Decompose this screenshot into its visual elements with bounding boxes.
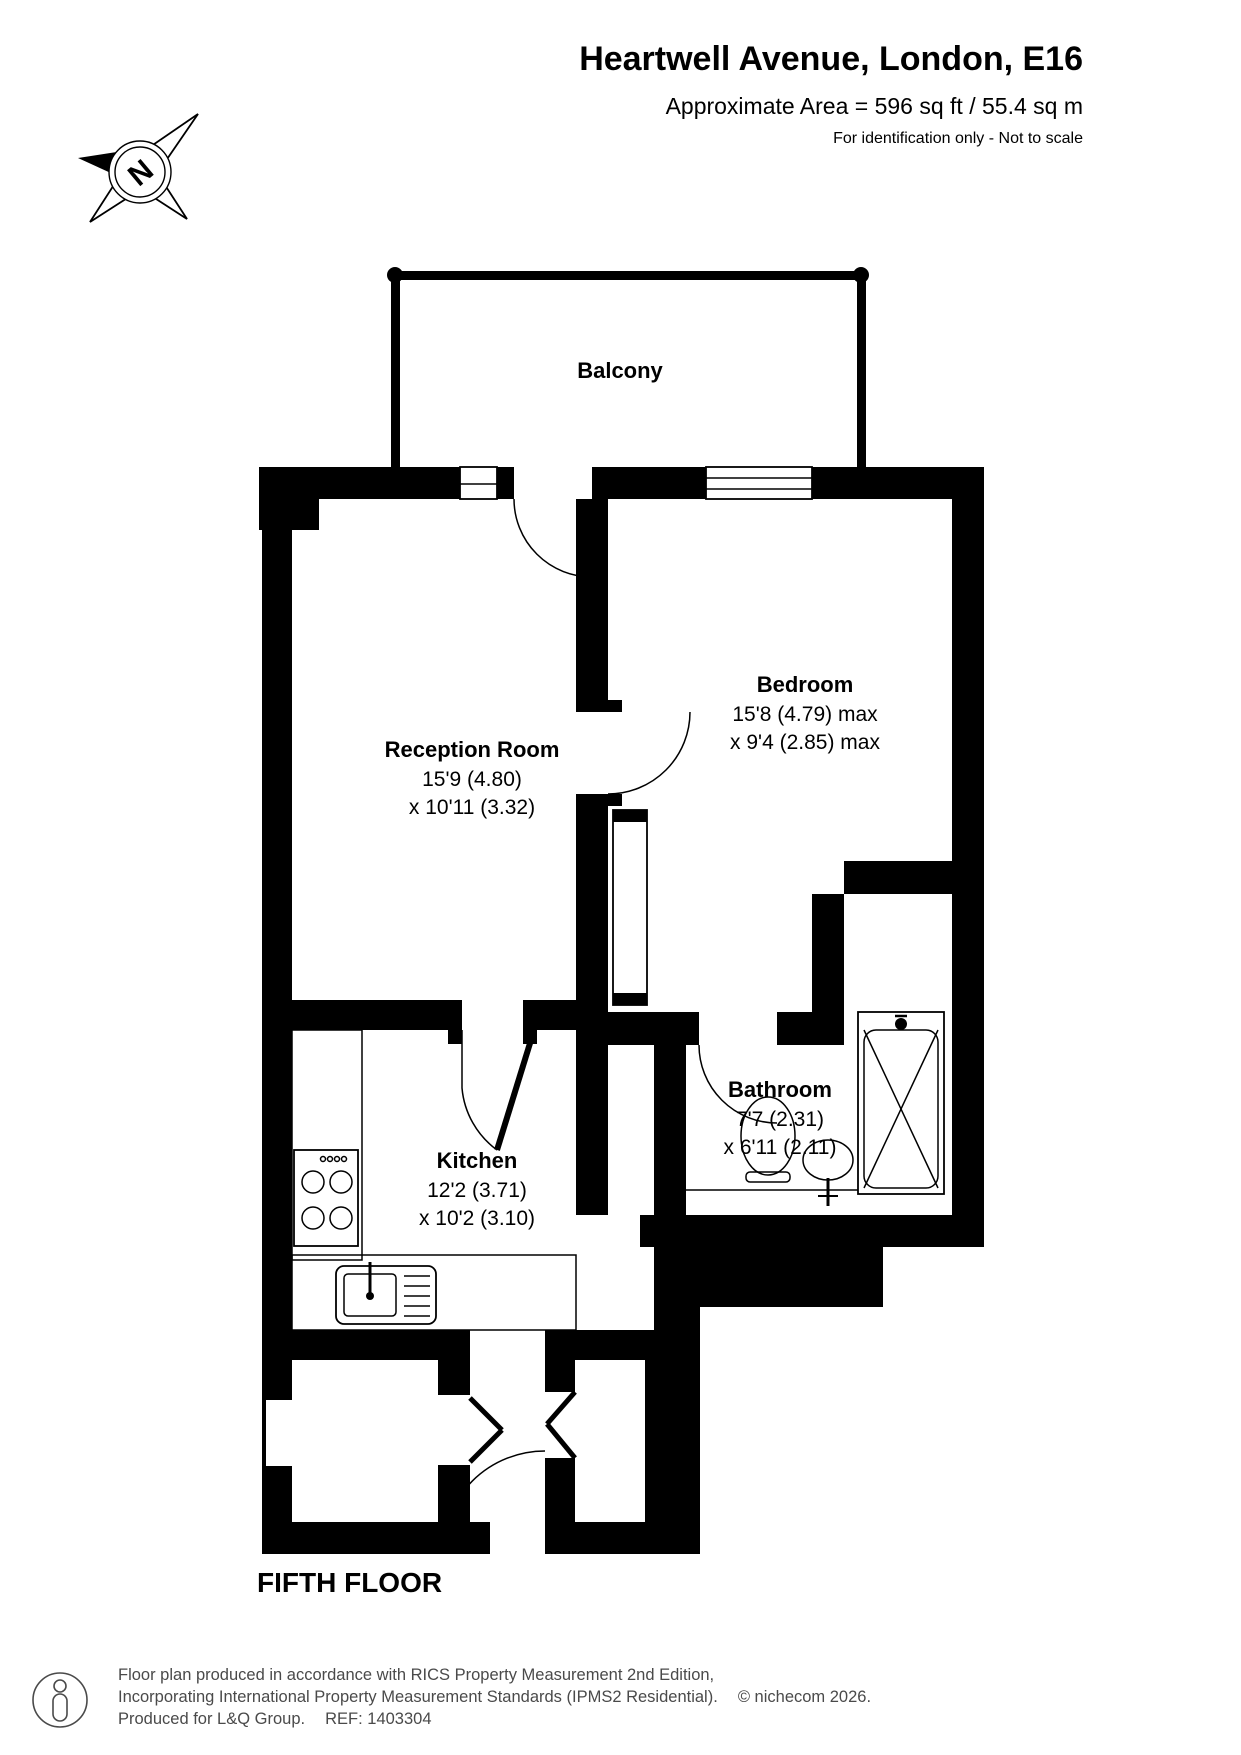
walls — [259, 467, 984, 1554]
floorplan-drawing: N — [0, 0, 1241, 1755]
svg-text:7'7 (2.31): 7'7 (2.31) — [736, 1108, 824, 1131]
kitchen-sink-icon — [336, 1262, 436, 1324]
bathtub-icon — [858, 1012, 944, 1194]
kitchen-door — [462, 1030, 531, 1150]
footer-line2: Incorporating International Property Mea… — [118, 1686, 871, 1708]
cupboard-door-leaves — [470, 1392, 575, 1462]
footer-text: Floor plan produced in accordance with R… — [118, 1664, 871, 1730]
svg-text:15'9 (4.80): 15'9 (4.80) — [422, 768, 522, 791]
svg-text:x 9'4 (2.85) max: x 9'4 (2.85) max — [730, 731, 880, 754]
compass-north-icon: N — [78, 114, 198, 222]
balcony-corner-dot — [853, 267, 869, 283]
bedroom-wall-recess — [613, 810, 647, 1005]
bedroom-label: Bedroom — [757, 672, 854, 697]
bedroom-window — [706, 467, 812, 499]
floor-label: FIFTH FLOOR — [257, 1567, 442, 1598]
kitchen-label: Kitchen — [437, 1148, 518, 1173]
svg-text:x 10'11 (3.32): x 10'11 (3.32) — [409, 796, 535, 819]
svg-text:x 6'11 (2.11): x 6'11 (2.11) — [724, 1136, 837, 1159]
bedroom-door-arc — [608, 712, 690, 794]
footer-line1: Floor plan produced in accordance with R… — [118, 1664, 871, 1686]
reference-number: REF: 1403304 — [325, 1710, 431, 1728]
balcony-label: Balcony — [577, 358, 663, 383]
floorplan-page: Heartwell Avenue, London, E16 Approximat… — [0, 0, 1241, 1755]
reception-label: Reception Room — [385, 737, 560, 762]
svg-text:12'2 (3.71): 12'2 (3.71) — [427, 1179, 527, 1202]
bathroom-label: Bathroom — [728, 1077, 832, 1102]
copyright: © nichecom 2026. — [738, 1688, 871, 1706]
balcony-corner-dot — [387, 267, 403, 283]
hob-icon — [294, 1150, 358, 1246]
svg-text:15'8 (4.79) max: 15'8 (4.79) max — [732, 703, 878, 726]
person-icon — [30, 1662, 100, 1732]
svg-text:x 10'2 (3.10): x 10'2 (3.10) — [419, 1207, 535, 1230]
reception-window — [460, 467, 497, 499]
footer-line3: Produced for L&Q Group.REF: 1403304 — [118, 1708, 871, 1730]
